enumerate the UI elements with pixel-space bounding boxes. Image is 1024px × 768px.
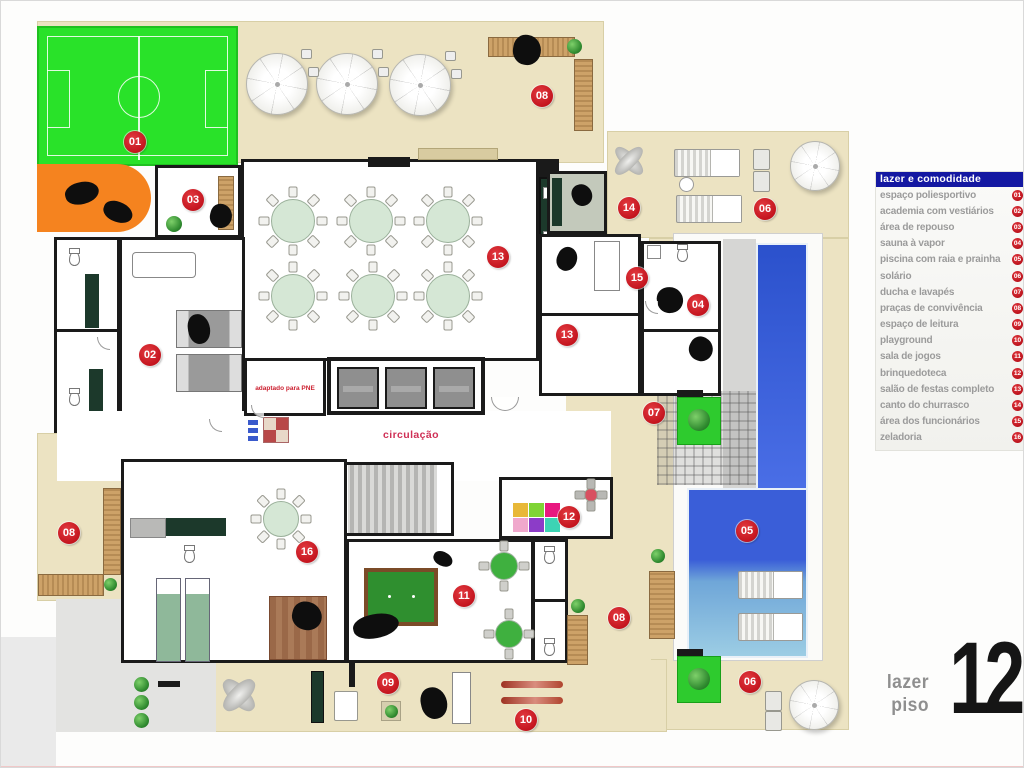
plan-marker-12: 12 xyxy=(558,506,580,528)
plan-marker-13: 13 xyxy=(556,324,578,346)
plan-marker-11: 11 xyxy=(453,585,475,607)
legend-item-label: academia com vestiários xyxy=(880,206,1012,217)
legend-item-13: salão de festas completo13 xyxy=(876,381,1024,397)
plan-marker-03: 03 xyxy=(182,189,204,211)
plan-marker-08: 08 xyxy=(531,85,553,107)
legend-item-15: área dos funcionários15 xyxy=(876,414,1024,430)
legend-item-09: espaço de leitura09 xyxy=(876,317,1024,333)
legend-item-02: academia com vestiários02 xyxy=(876,203,1024,219)
legend-item-label: espaço de leitura xyxy=(880,319,1012,330)
plan-marker-01: 01 xyxy=(124,131,146,153)
legend-item-number: 07 xyxy=(1012,287,1023,298)
legend-item-label: salão de festas completo xyxy=(880,384,1012,395)
plan-marker-06: 06 xyxy=(754,198,776,220)
legend-item-number: 08 xyxy=(1012,303,1023,314)
legend-item-12: brinquedoteca12 xyxy=(876,365,1024,381)
legend-item-number: 06 xyxy=(1012,271,1023,282)
plan-marker-08: 08 xyxy=(608,607,630,629)
plan-marker-13: 13 xyxy=(487,246,509,268)
legend-item-06: solário06 xyxy=(876,268,1024,284)
plan-marker-05: 05 xyxy=(736,520,758,542)
legend-panel: lazer e comodidade espaço poliesportivo0… xyxy=(875,171,1024,451)
legend-item-label: área dos funcionários xyxy=(880,416,1012,427)
legend-item-number: 02 xyxy=(1012,206,1023,217)
plan-marker-15: 15 xyxy=(626,267,648,289)
legend-item-number: 11 xyxy=(1012,351,1023,362)
legend-item-number: 16 xyxy=(1012,432,1023,443)
legend-title: lazer e comodidade xyxy=(876,172,1024,187)
legend-item-16: zeladoria16 xyxy=(876,430,1024,446)
plan-marker-07: 07 xyxy=(643,402,665,424)
legend-item-label: praças de convivência xyxy=(880,303,1012,314)
legend-item-05: piscina com raia e prainha05 xyxy=(876,252,1024,268)
legend-item-number: 01 xyxy=(1012,190,1023,201)
floor-logo-words: lazer piso xyxy=(887,671,929,717)
legend-item-number: 05 xyxy=(1012,254,1023,265)
plan-marker-08: 08 xyxy=(58,522,80,544)
legend-item-number: 14 xyxy=(1012,400,1023,411)
legend-item-04: sauna à vapor04 xyxy=(876,236,1024,252)
legend-item-10: playground10 xyxy=(876,333,1024,349)
legend-item-07: ducha e lavapés07 xyxy=(876,284,1024,300)
legend-item-label: brinquedoteca xyxy=(880,368,1012,379)
floor-logo: lazer piso 12 xyxy=(851,631,1021,756)
legend-item-label: zeladoria xyxy=(880,432,1012,443)
plan-marker-14: 14 xyxy=(618,197,640,219)
legend-item-11: sala de jogos11 xyxy=(876,349,1024,365)
floor-number: 12 xyxy=(949,627,1019,729)
legend-item-label: playground xyxy=(880,335,1012,346)
legend-item-number: 03 xyxy=(1012,222,1023,233)
legend-item-number: 09 xyxy=(1012,319,1023,330)
plan-marker-06: 06 xyxy=(739,671,761,693)
legend-item-number: 13 xyxy=(1012,384,1023,395)
legend-item-number: 04 xyxy=(1012,238,1023,249)
logo-line1: lazer xyxy=(887,671,929,694)
legend-item-label: área de repouso xyxy=(880,222,1012,233)
legend-item-14: canto do churrasco14 xyxy=(876,397,1024,413)
legend-item-number: 15 xyxy=(1012,416,1023,427)
floorplan-page: adaptado para PNE circulação xyxy=(0,0,1024,768)
plan-marker-02: 02 xyxy=(139,344,161,366)
logo-line2: piso xyxy=(887,694,929,717)
legend-item-number: 10 xyxy=(1012,335,1023,346)
plan-marker-04: 04 xyxy=(687,294,709,316)
legend-item-label: sauna à vapor xyxy=(880,238,1012,249)
legend-item-label: espaço poliesportivo xyxy=(880,190,1012,201)
legend-item-number: 12 xyxy=(1012,368,1023,379)
legend-item-03: área de repouso03 xyxy=(876,219,1024,235)
legend-item-label: ducha e lavapés xyxy=(880,287,1012,298)
legend-item-label: piscina com raia e prainha xyxy=(880,254,1012,265)
plan-marker-16: 16 xyxy=(296,541,318,563)
legend-item-01: espaço poliesportivo01 xyxy=(876,187,1024,203)
legend-item-label: sala de jogos xyxy=(880,351,1012,362)
legend-item-label: solário xyxy=(880,271,1012,282)
plan-marker-10: 10 xyxy=(515,709,537,731)
legend-item-label: canto do churrasco xyxy=(880,400,1012,411)
legend-item-08: praças de convivência08 xyxy=(876,300,1024,316)
plan-marker-09: 09 xyxy=(377,672,399,694)
